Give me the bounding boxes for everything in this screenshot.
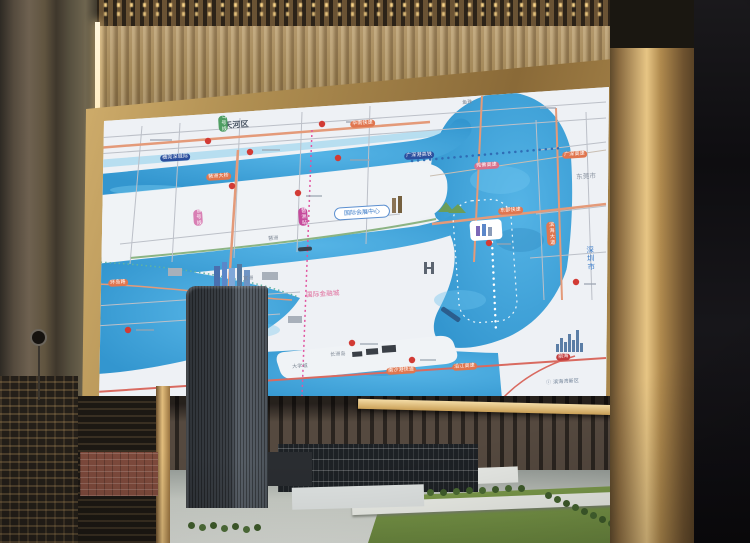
map-road-badge: 琶洲大桥 bbox=[206, 172, 231, 181]
map-road-badge: 滨海大道 bbox=[546, 221, 556, 246]
map-transit-badge: 前海 bbox=[556, 353, 571, 361]
map-transit-badge: 琶洲站 bbox=[298, 207, 308, 226]
map-small-label: 大学城 bbox=[292, 363, 308, 371]
map-transit-badge: 广深港高铁 bbox=[404, 151, 434, 160]
map-region-label: 国际金融城 bbox=[306, 290, 340, 299]
map-road-badge: 环岛路 bbox=[108, 279, 128, 287]
model-brick-buildings bbox=[80, 452, 158, 496]
map-small-label: 鱼珠 bbox=[462, 99, 473, 107]
left-pillars bbox=[0, 0, 97, 432]
map-region-label: 深圳市 bbox=[586, 246, 595, 272]
map-oval-label: 国际会展中心 bbox=[334, 204, 391, 220]
model-low-blocks bbox=[268, 452, 312, 486]
model-walkway bbox=[292, 484, 425, 509]
map-transit-badge: 8号线 bbox=[193, 209, 203, 226]
model-main-tower bbox=[186, 286, 268, 508]
round-emblem bbox=[30, 329, 47, 346]
map-road-badge: 莞佛高速 bbox=[474, 161, 499, 170]
right-column-shadow bbox=[610, 0, 702, 50]
map-road-badge: 广深高速 bbox=[562, 150, 587, 159]
map-small-label: 长洲岛 bbox=[330, 351, 346, 359]
map-region-label: ⓘ 滨海湾新区 bbox=[546, 378, 579, 387]
map-small-label: 琶洲 bbox=[268, 235, 279, 243]
model-dark-tower-left bbox=[0, 376, 78, 543]
map-transit-badge: 7号线 bbox=[218, 115, 228, 132]
showroom-scene: 国际会展中心 天河区东莞市深圳市国际金融城ⓘ 滨海湾新区琶洲官洲长洲岛大学城鱼珠… bbox=[0, 0, 750, 543]
map-road-badge: 南沙港快速 bbox=[386, 366, 416, 375]
map-transit-badge: 穗莞深城际 bbox=[160, 153, 190, 162]
dark-glass-wall bbox=[694, 0, 750, 543]
emblem-pole bbox=[38, 346, 40, 400]
map-road-badge: 沿江高速 bbox=[452, 362, 477, 371]
gold-post bbox=[156, 386, 170, 543]
map-region-label: 东莞市 bbox=[576, 173, 596, 181]
right-gold-column bbox=[610, 48, 702, 543]
map-road-badge: 华南快速 bbox=[350, 119, 375, 128]
model-tree-row bbox=[188, 522, 195, 529]
map-small-label: 官洲 bbox=[243, 275, 254, 283]
map-road-badge: 东部快速 bbox=[498, 206, 523, 215]
model-tree-row bbox=[545, 492, 552, 499]
